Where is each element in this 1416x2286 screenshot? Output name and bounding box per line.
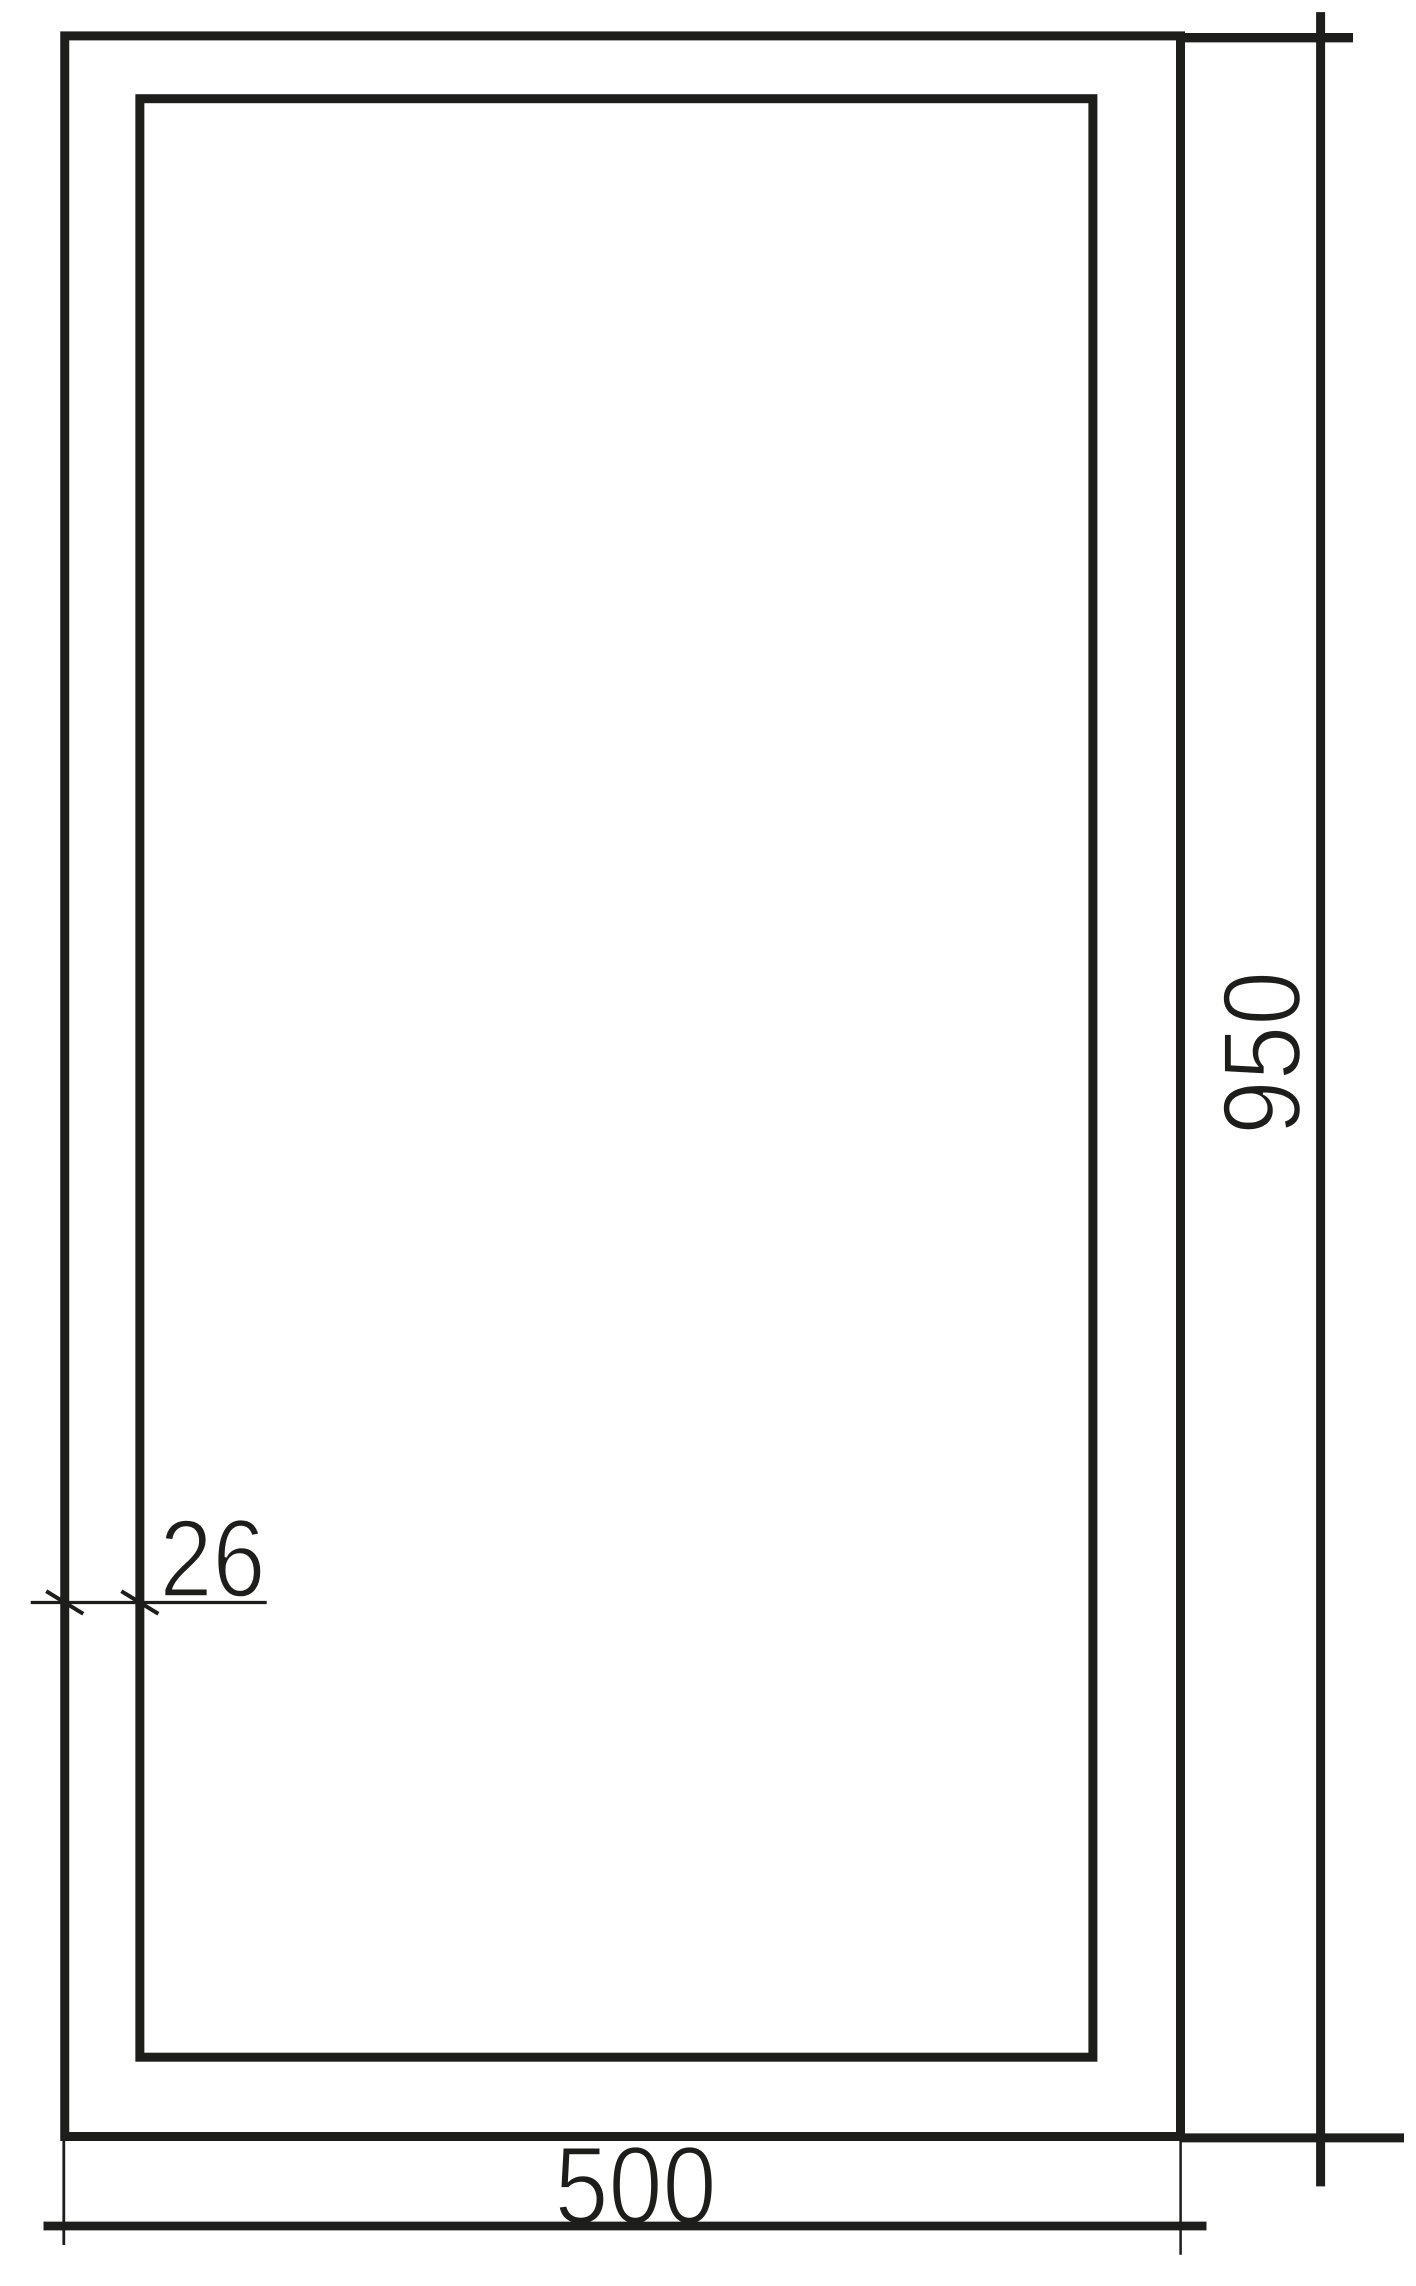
svg-text:950: 950 bbox=[1201, 971, 1324, 1135]
